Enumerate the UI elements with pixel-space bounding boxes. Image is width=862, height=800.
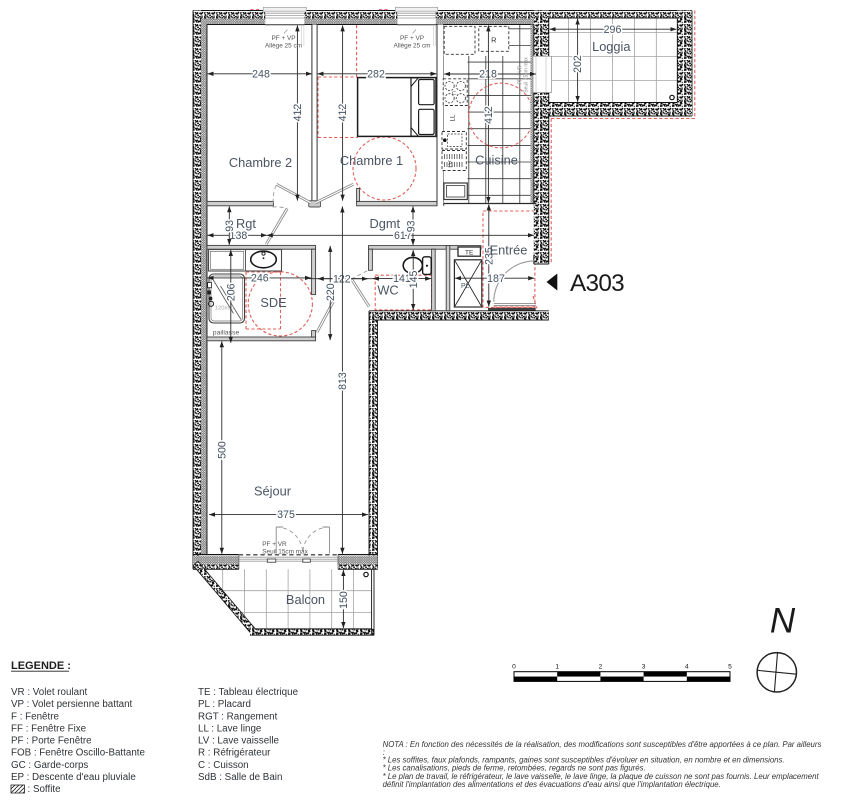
svg-text:500: 500 [216,441,228,459]
svg-text:282: 282 [367,68,385,80]
svg-text:375: 375 [277,509,295,521]
svg-text:N: N [770,602,796,641]
svg-text:LV : Lave vaisselle: LV : Lave vaisselle [198,736,280,747]
svg-text:R : Réfrigérateur: R : Réfrigérateur [198,748,271,759]
svg-text:412: 412 [483,106,495,124]
svg-text:Seuil 15cm max: Seuil 15cm max [524,57,530,93]
svg-text:LV: LV [448,160,455,168]
svg-text:PF + VP: PF + VP [400,35,424,42]
svg-text:RGT : Rangement: RGT : Rangement [198,711,278,722]
svg-text:PL: PL [461,283,470,290]
svg-text:93: 93 [405,220,417,232]
svg-text:Seuil 15cm max: Seuil 15cm max [262,549,308,556]
svg-text:122: 122 [333,273,351,285]
svg-text:Séjour: Séjour [254,484,292,499]
svg-text:paillasse: paillasse [213,330,240,337]
svg-text:C : Cuisson: C : Cuisson [198,760,249,771]
svg-text:NOTA : En fonction des nécessi: NOTA : En fonction des nécessités de la … [383,740,822,749]
svg-text:3: 3 [642,664,646,671]
svg-text:Loggia: Loggia [592,39,631,54]
svg-text:296: 296 [604,24,622,36]
svg-text:LEGENDE :: LEGENDE : [11,660,71,672]
svg-text:Balcon: Balcon [286,592,325,607]
svg-text:1: 1 [555,664,559,671]
svg-text:206: 206 [225,283,237,301]
svg-text:VP : Volet persienne battant: VP : Volet persienne battant [11,699,133,710]
svg-text:Entrée: Entrée [490,243,528,258]
svg-text:GC : Garde-corps: GC : Garde-corps [11,760,88,771]
svg-text:Rgt: Rgt [236,216,256,231]
svg-text:EP : Descente d'eau pluviale: EP : Descente d'eau pluviale [11,772,136,783]
svg-text:93: 93 [224,220,236,232]
svg-text:220: 220 [325,283,337,301]
svg-text:PF + VR: PF + VR [262,541,287,548]
svg-text:VR : Volet roulant: VR : Volet roulant [11,687,88,698]
svg-text:248: 248 [252,68,270,80]
svg-text:150: 150 [338,591,350,609]
svg-text:A303: A303 [570,270,624,297]
svg-text:0: 0 [512,664,516,671]
svg-text:Allège 25 cm: Allège 25 cm [394,42,431,49]
svg-text:412: 412 [292,104,304,122]
svg-text:FF : Fenêtre Fixe: FF : Fenêtre Fixe [11,723,87,734]
svg-text:F : Fenêtre: F : Fenêtre [11,711,59,722]
svg-text:LL: LL [450,114,457,121]
svg-text:: Soffite: : Soffite [28,784,62,795]
svg-text:PF : Porte Fenêtre: PF : Porte Fenêtre [11,736,92,747]
svg-text:Cuisine: Cuisine [475,153,518,168]
svg-text:PL : Placard: PL : Placard [198,699,251,710]
svg-text:C: C [452,91,456,97]
svg-text:145: 145 [408,270,420,288]
svg-text:FOB : Fenêtre Oscillo-Battante: FOB : Fenêtre Oscillo-Battante [11,748,145,759]
svg-text:813: 813 [337,372,349,390]
svg-text:TE: TE [465,249,474,256]
svg-text:R: R [491,36,497,45]
svg-text:246: 246 [251,273,269,285]
svg-text:WC: WC [377,283,398,298]
svg-text:187: 187 [487,273,505,285]
svg-text:SDE: SDE [260,295,286,310]
svg-text:TE : Tableau électrique: TE : Tableau électrique [198,687,299,698]
svg-text:LL : Lave linge: LL : Lave linge [198,723,262,734]
svg-text:412: 412 [337,104,349,122]
svg-text:2: 2 [599,664,603,671]
svg-text:SdB : Salle de Bain: SdB : Salle de Bain [198,772,282,783]
svg-text:Dgmt: Dgmt [370,216,401,231]
svg-text:Chambre 1: Chambre 1 [340,153,403,168]
svg-text:Allège 25 cm: Allège 25 cm [265,42,302,49]
svg-text:4: 4 [685,664,689,671]
svg-text:définit l'implantation des ali: définit l'implantation des alimentations… [383,780,721,789]
svg-text:5: 5 [728,664,732,671]
svg-text:Chambre 2: Chambre 2 [229,155,292,170]
svg-text:202: 202 [572,55,584,73]
svg-text:PF + VP: PF + VP [272,35,296,42]
